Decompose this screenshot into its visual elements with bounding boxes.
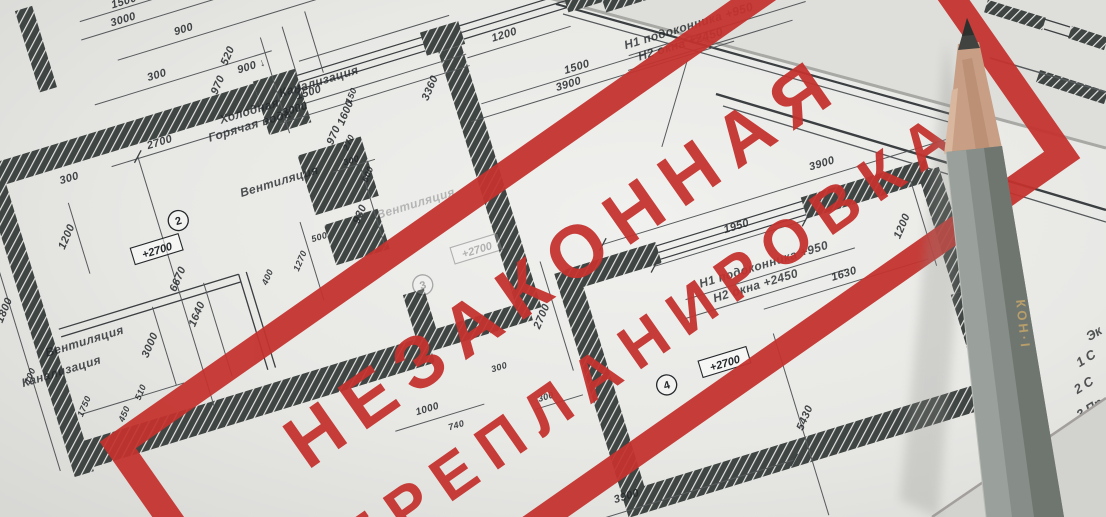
photo-of-floor-plan: 15003000900300970520900 ↓150030001600150… (0, 0, 1106, 517)
